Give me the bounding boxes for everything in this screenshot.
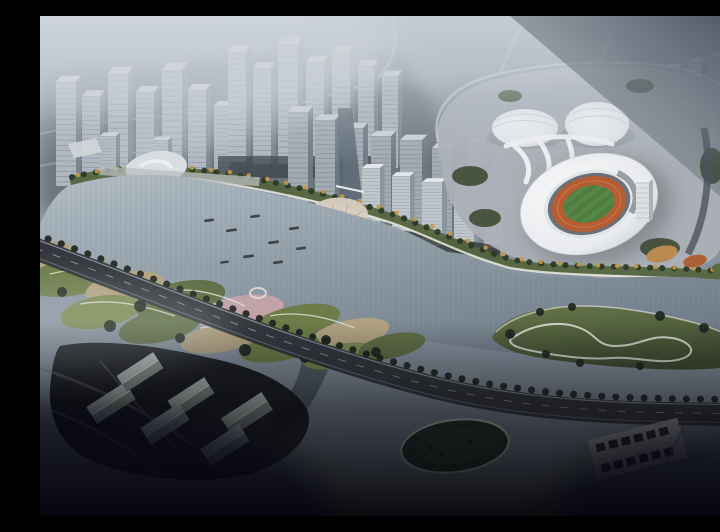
- masterplan-rendering: [40, 16, 720, 516]
- stadium-tower: [636, 179, 653, 222]
- rendering-svg: [40, 16, 720, 516]
